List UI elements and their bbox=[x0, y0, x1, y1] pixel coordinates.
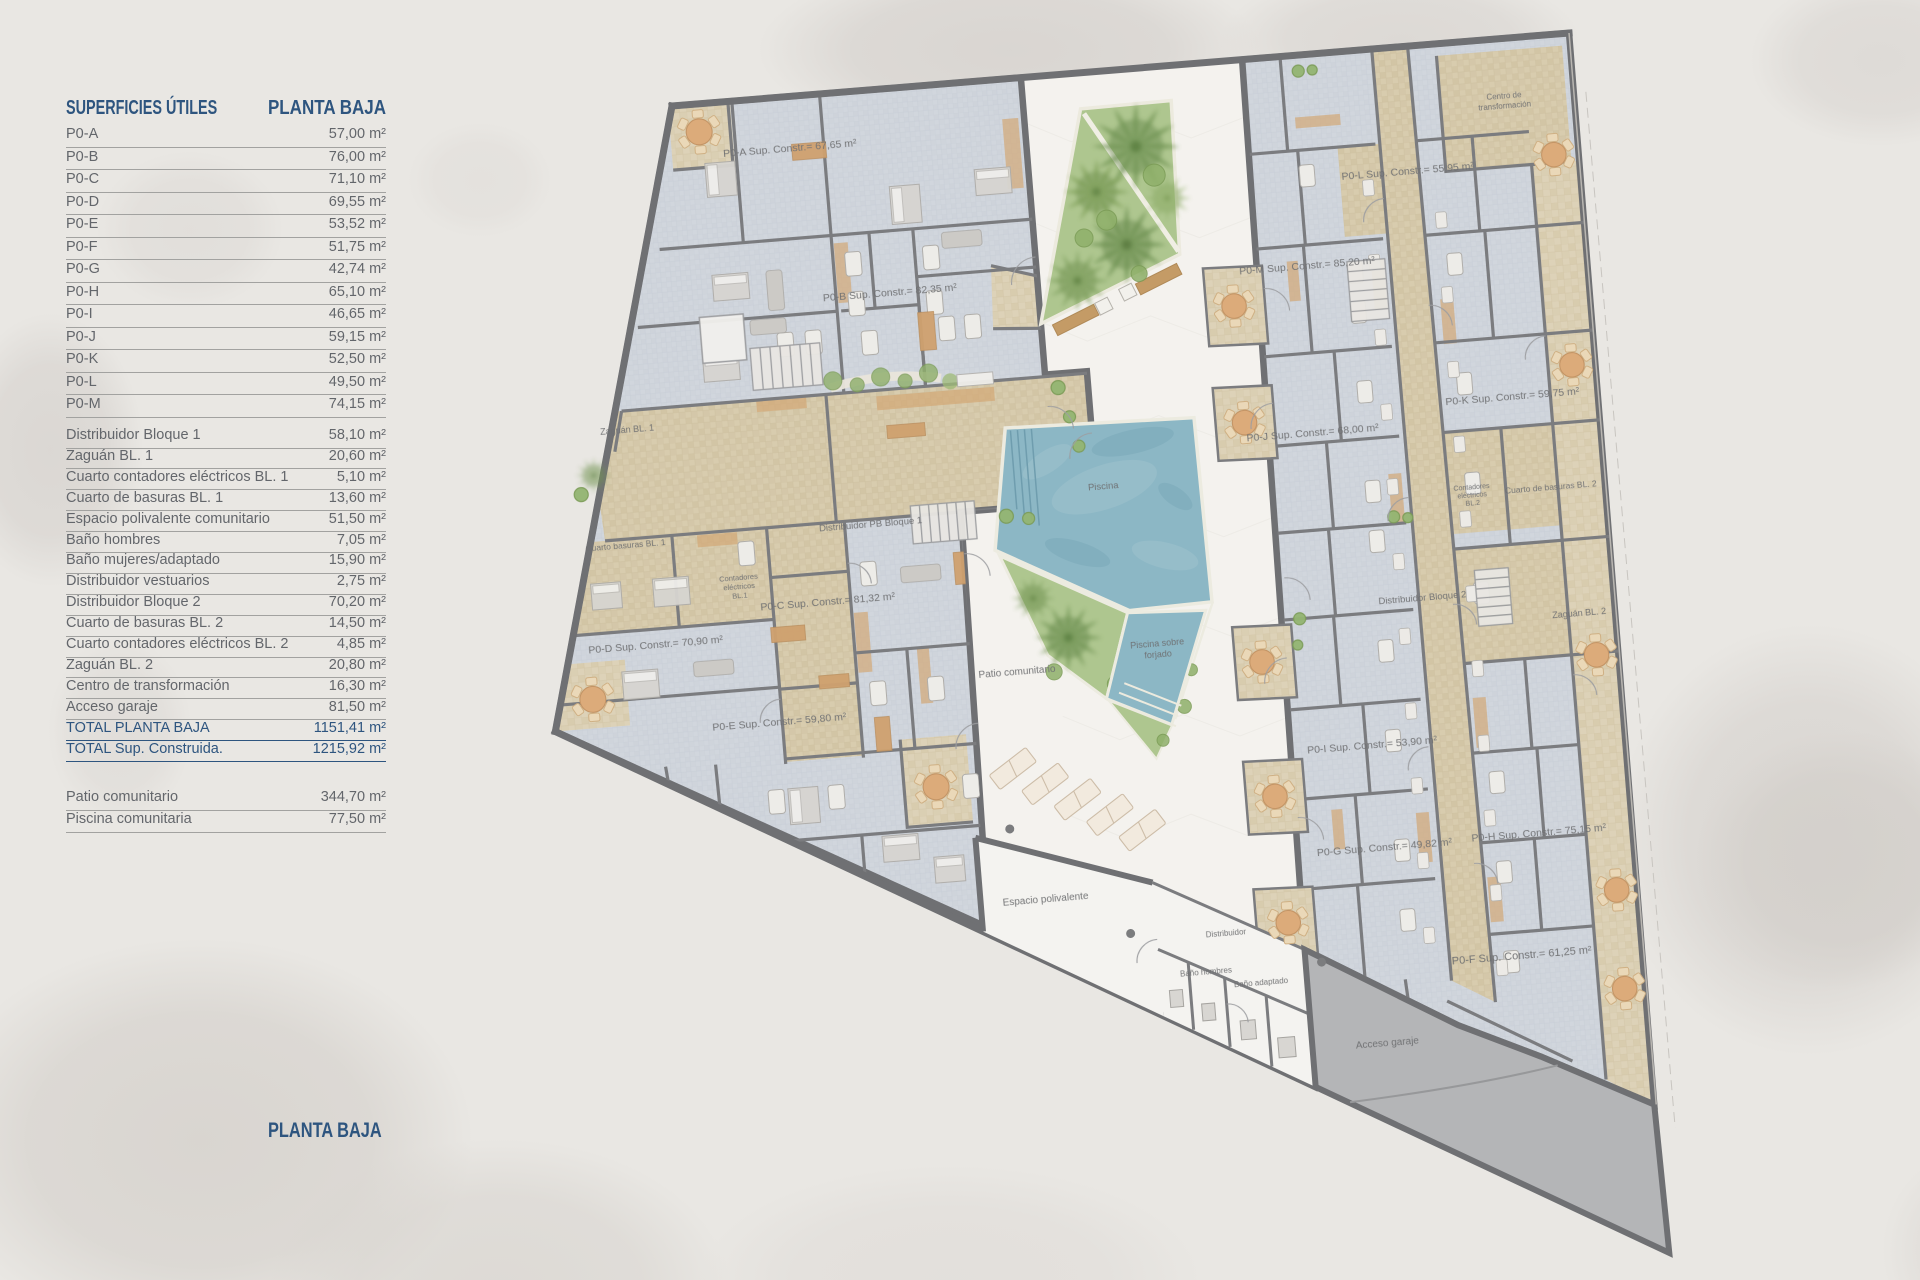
svg-text:BL.1: BL.1 bbox=[732, 590, 748, 600]
svg-text:BL.2: BL.2 bbox=[1465, 500, 1480, 508]
